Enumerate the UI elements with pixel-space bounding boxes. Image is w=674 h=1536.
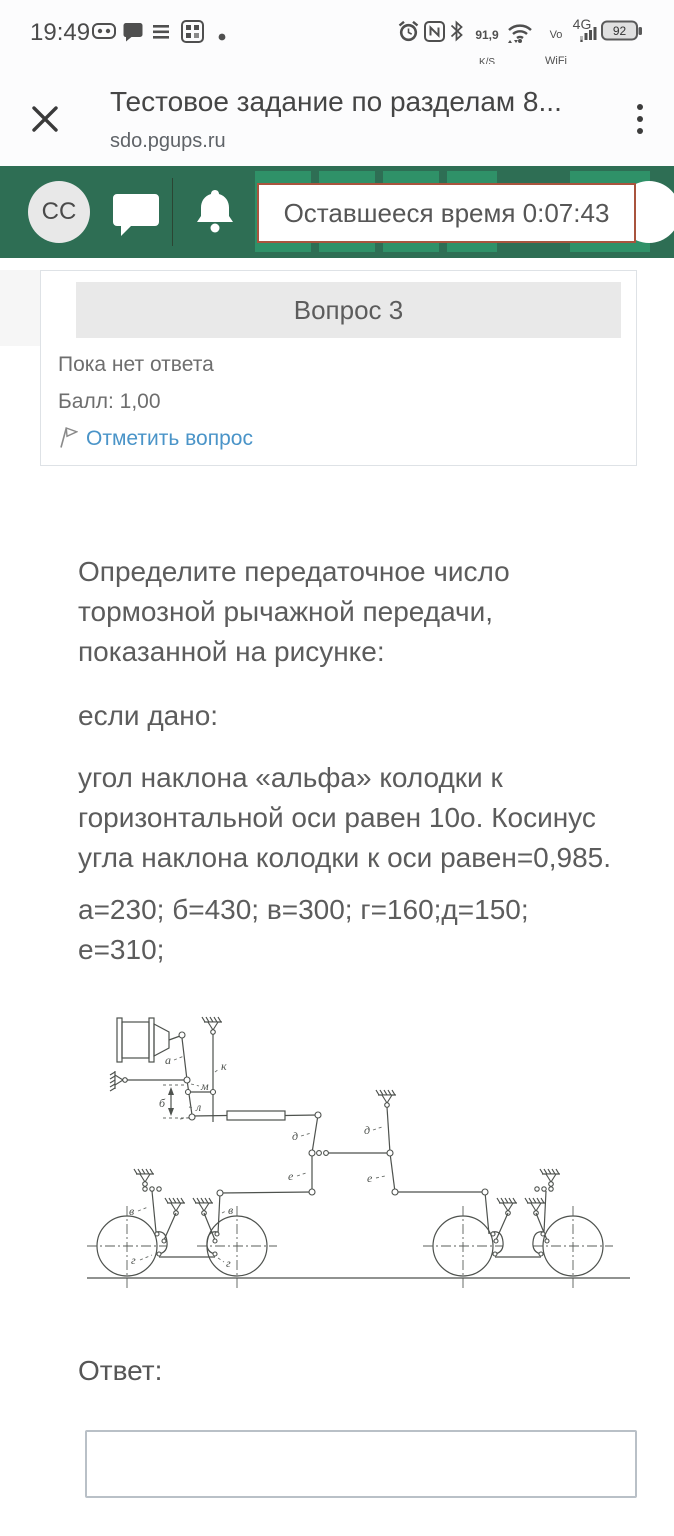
diagram-label-m: м [200, 1079, 209, 1093]
question-number-header: Вопрос 3 [76, 282, 621, 338]
diagram-label-l: л [195, 1100, 201, 1114]
quiz-timer: Оставшееся время 0:07:43 [257, 183, 636, 243]
wifi-icon [506, 21, 534, 50]
diagram-label-d1: д [292, 1129, 298, 1143]
diagram-label-v1: в [129, 1204, 134, 1218]
diagram-label-e1: е [288, 1169, 294, 1183]
status-bar: 19:49 91,9 K/S [0, 0, 674, 64]
question-info-card: Вопрос 3 Пока нет ответа Балл: 1,00 Отме… [40, 270, 637, 466]
messages-icon[interactable] [112, 192, 160, 243]
phone-screen: 19:49 91,9 K/S [0, 0, 674, 1536]
answer-input[interactable] [85, 1430, 637, 1498]
user-avatar[interactable]: СС [28, 181, 90, 243]
answer-label: Ответ: [78, 1355, 162, 1387]
quiz-app-bar: СС Оставшееся время 0:07:43 [0, 166, 674, 258]
question-paragraph: если дано: [78, 696, 612, 736]
diagram-label-b: б [159, 1096, 166, 1110]
diagram-label-g2: г [226, 1256, 231, 1270]
vowifi-line1: Vo [550, 29, 563, 41]
diagram-label-e2: е [367, 1171, 373, 1185]
lines-icon [153, 25, 171, 44]
bluetooth-icon [449, 19, 464, 48]
overflow-menu-icon[interactable] [636, 98, 644, 146]
close-icon[interactable] [28, 102, 62, 141]
flag-icon [58, 425, 78, 449]
diagram-label-k: к [221, 1059, 227, 1073]
widget-grid-icon [181, 20, 204, 48]
net-speed-value: 91,9 [475, 28, 498, 42]
question-paragraph: а=230; б=430; в=300; г=160;д=150; е=310; [78, 890, 612, 970]
question-paragraph: Определите передаточное число тормозной … [78, 552, 612, 672]
notifications-bell-icon[interactable] [194, 188, 236, 241]
diagram-label-a: а [165, 1053, 171, 1067]
nfc-icon [424, 21, 445, 47]
flag-question-label: Отметить вопрос [86, 427, 253, 450]
chat-bubble-icon [123, 22, 143, 47]
diagram-label-g1: г [131, 1253, 136, 1267]
divider [172, 178, 173, 246]
diagram-label-d2: д [364, 1123, 370, 1137]
browser-header: Тестовое задание по разделам 8... sdo.pg… [0, 64, 674, 166]
battery-icon: 92 [601, 20, 643, 47]
signal-bars-icon [580, 24, 598, 47]
vowifi-indicator: Vo WiFi [541, 16, 571, 68]
left-gutter [0, 270, 40, 346]
question-grade: Балл: 1,00 [58, 390, 161, 414]
clock-time: 19:49 [30, 19, 90, 47]
question-text: Определите передаточное число тормозной … [78, 552, 612, 970]
page-domain: sdo.pgups.ru [110, 130, 226, 153]
page-title: Тестовое задание по разделам 8... [110, 86, 610, 118]
diagram-label-v2: в [228, 1203, 233, 1217]
notification-dot [218, 28, 226, 46]
question-status: Пока нет ответа [58, 353, 214, 377]
brake-rigging-diagram: а б к м л д д е е в в г г [85, 1008, 645, 1300]
alarm-clock-icon [396, 19, 421, 49]
battery-percent: 92 [613, 24, 627, 38]
net-speed-indicator: 91,9 K/S [470, 16, 504, 69]
controller-icon [92, 22, 116, 45]
question-paragraph: угол наклона «альфа» колодки к горизонта… [78, 758, 612, 878]
flag-question-link[interactable]: Отметить вопрос [58, 425, 253, 451]
